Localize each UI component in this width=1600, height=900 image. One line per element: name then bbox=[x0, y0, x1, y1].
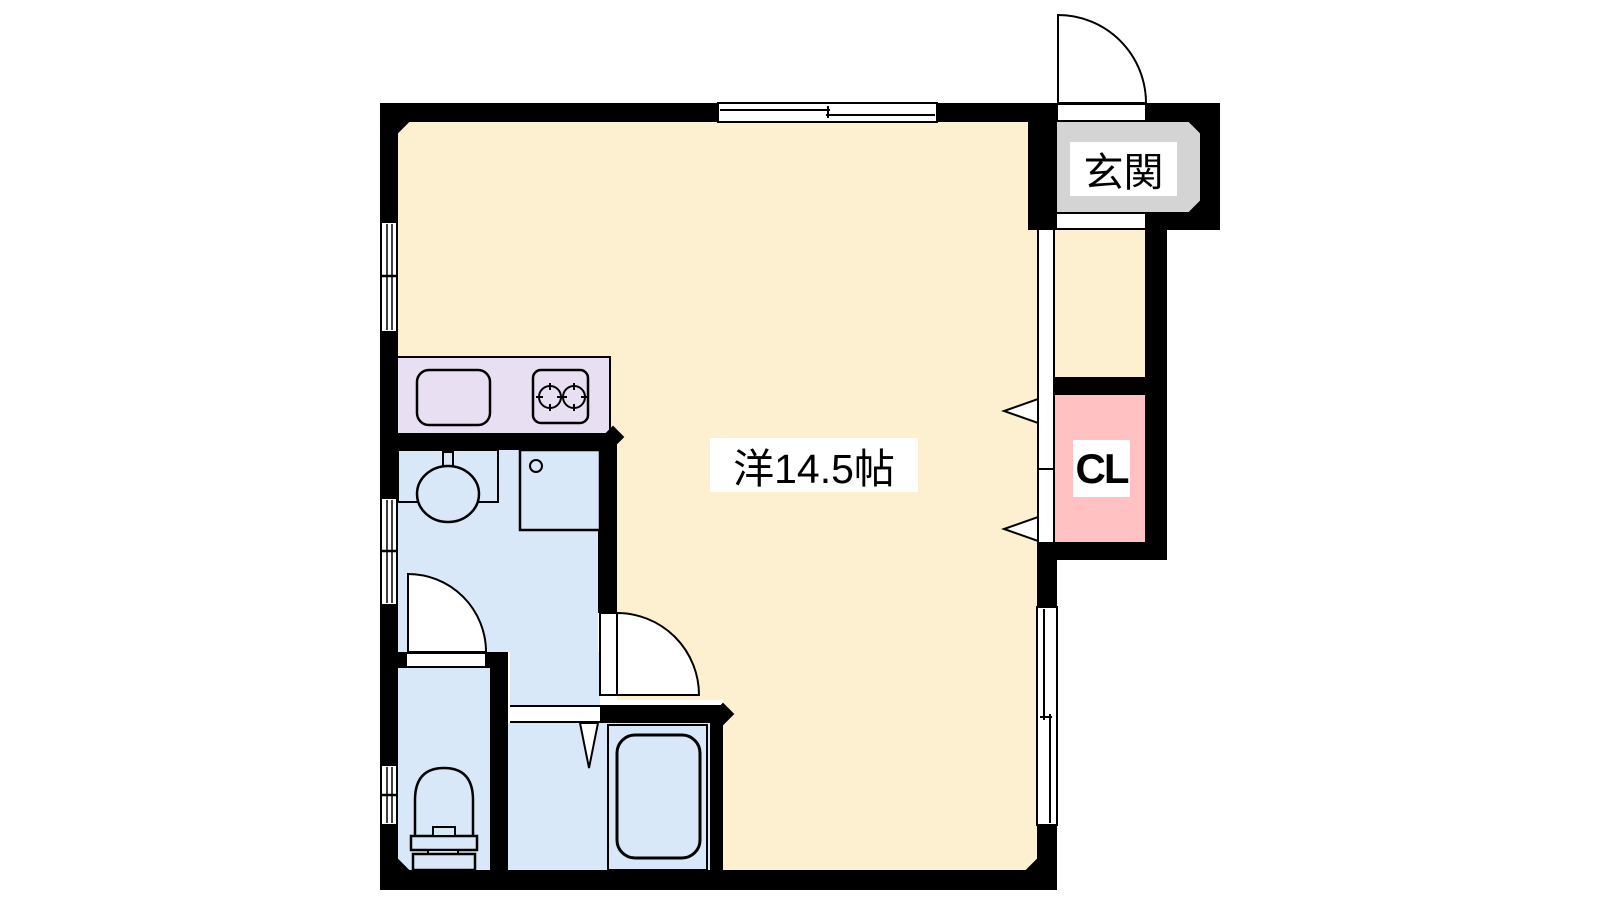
washbasin-icon bbox=[398, 450, 498, 522]
closet-label-text: CL bbox=[1076, 445, 1128, 493]
casement-window-left-middle-icon bbox=[381, 498, 397, 605]
entrance-label: 玄関 bbox=[1070, 142, 1177, 196]
closet-bifold-arrow-lower-icon bbox=[1004, 517, 1038, 541]
washroom-door-icon bbox=[617, 613, 699, 695]
closet-bifold-arrow-upper-icon bbox=[1004, 399, 1038, 423]
closet-label: CL bbox=[1073, 440, 1130, 497]
gas-stove-icon bbox=[533, 370, 588, 423]
kitchen-sink-icon bbox=[417, 370, 490, 425]
entrance-label-text: 玄関 bbox=[1084, 140, 1164, 198]
main-room-label-text: 洋14.5帖 bbox=[733, 435, 895, 495]
entrance-door-icon bbox=[1058, 15, 1146, 103]
casement-window-left-upper-icon bbox=[381, 222, 397, 332]
bathtub-icon bbox=[608, 725, 707, 870]
sliding-window-top-icon bbox=[718, 103, 937, 122]
floor-plan: 洋14.5帖 玄関 CL bbox=[0, 0, 1600, 900]
toilet-icon bbox=[411, 768, 477, 870]
washing-machine-icon bbox=[520, 450, 600, 530]
main-room-label: 洋14.5帖 bbox=[710, 438, 918, 492]
toilet-door-icon bbox=[408, 574, 486, 652]
casement-window-left-lower-icon bbox=[381, 765, 397, 825]
sliding-window-right-icon bbox=[1037, 607, 1057, 825]
bath-folding-door-icon bbox=[580, 723, 598, 768]
washroom-door-leaf bbox=[600, 613, 617, 695]
